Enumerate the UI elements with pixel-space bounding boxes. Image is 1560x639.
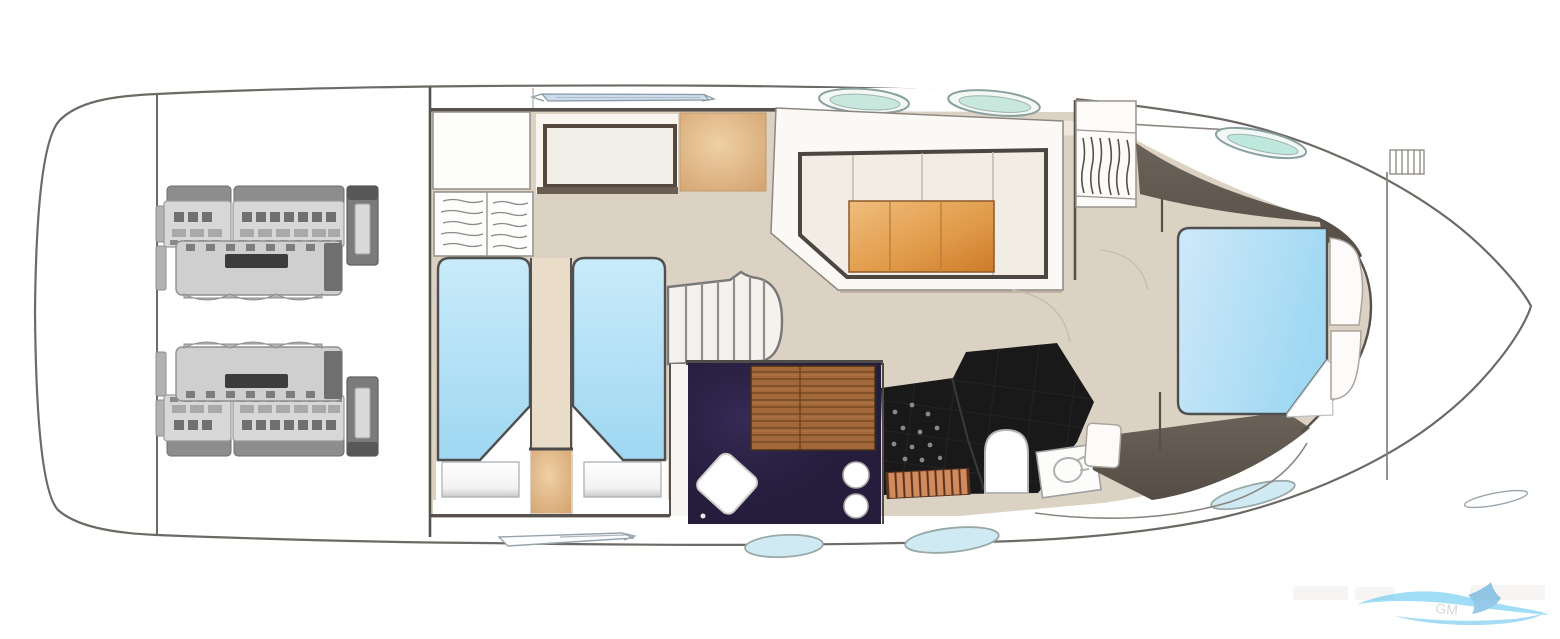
svg-text:GM: GM: [1435, 600, 1459, 618]
